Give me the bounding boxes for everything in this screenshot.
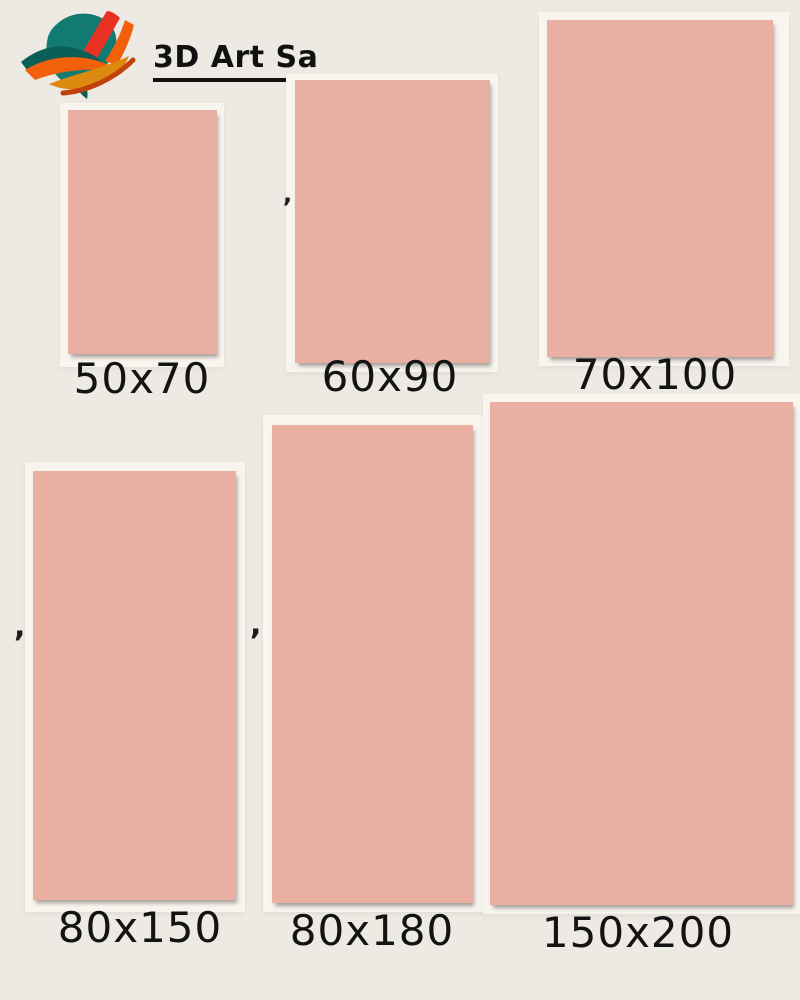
- stray-comma-mark: ,: [250, 610, 261, 640]
- size-label-50x70: 50x70: [58, 357, 226, 401]
- size-label-70x100: 70x100: [553, 353, 757, 397]
- paint-brush-flower-icon: [18, 6, 150, 106]
- size-swatch-80x180[interactable]: [272, 425, 473, 903]
- size-swatch-70x100[interactable]: [547, 20, 773, 357]
- size-swatch-60x90[interactable]: [295, 80, 490, 363]
- brand-logo: [18, 6, 150, 106]
- size-swatch-80x150[interactable]: [33, 471, 236, 900]
- size-label-150x200: 150x200: [522, 911, 754, 955]
- stray-comma-mark: ,: [283, 182, 292, 206]
- size-swatch-50x70[interactable]: [68, 110, 217, 354]
- size-label-80x150: 80x150: [38, 906, 242, 950]
- size-label-80x180: 80x180: [270, 909, 474, 953]
- size-label-60x90: 60x90: [298, 355, 482, 399]
- stray-comma-mark: ,: [14, 612, 25, 642]
- size-swatch-150x200[interactable]: [490, 402, 793, 905]
- size-chart-page: 3D Art Sa 50x70 60x90 70x100 80x150 80x1…: [0, 0, 800, 1000]
